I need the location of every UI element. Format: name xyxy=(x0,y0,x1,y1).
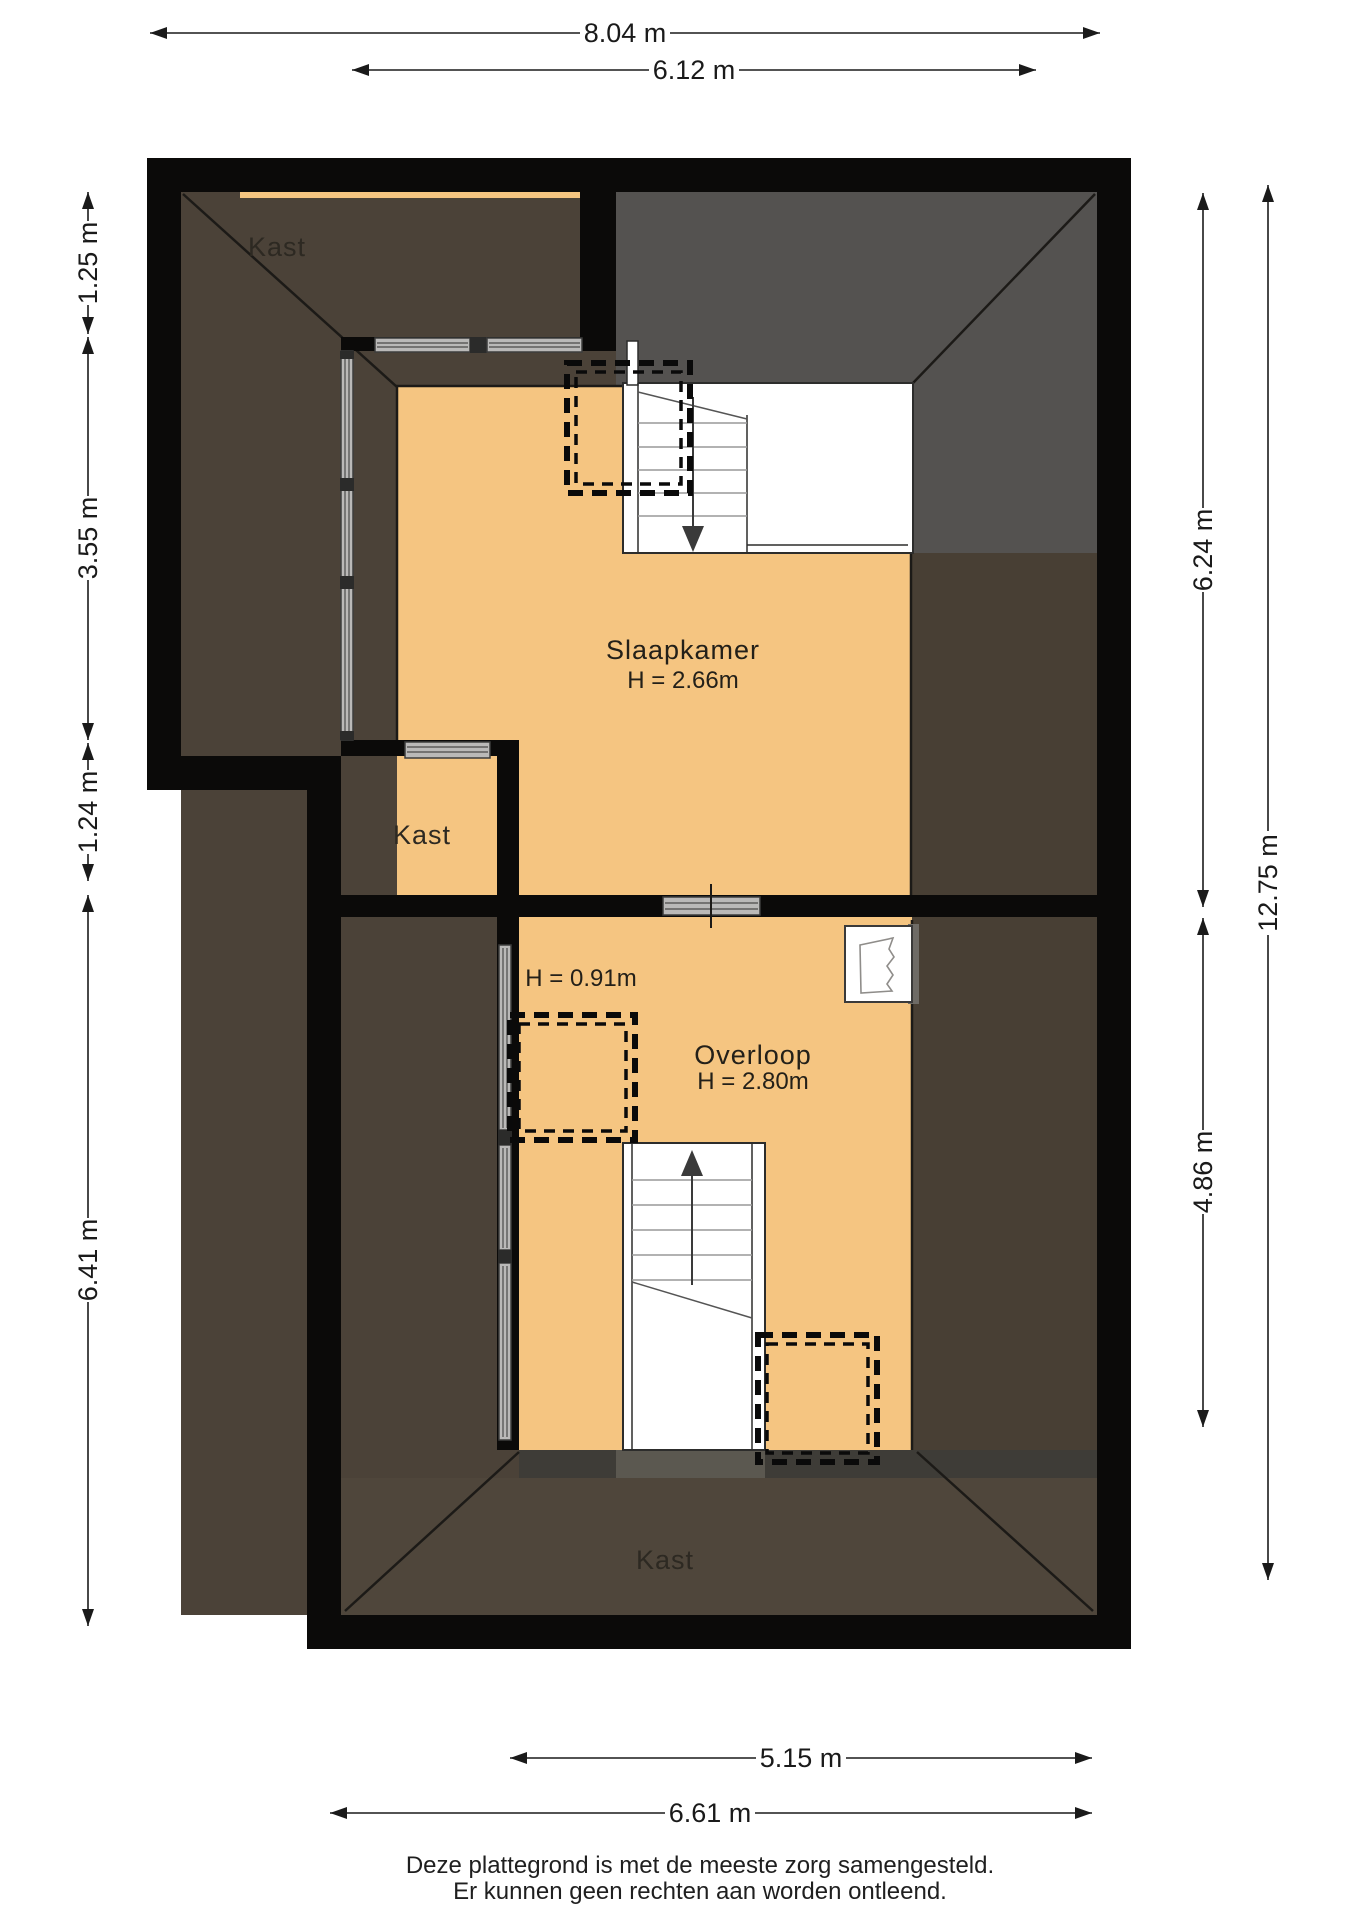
label-overloop-height: H = 2.80m xyxy=(697,1068,808,1095)
dimension-bottom-5-15: 5.15 m xyxy=(510,1741,1092,1775)
label-slaapkamer-height: H = 2.66m xyxy=(627,667,738,694)
shadow-band-under-stairs xyxy=(616,1450,765,1478)
wall-kast-gray-divider xyxy=(580,192,616,351)
floorplan-page: Kast Slaapkamer H = 2.66m Kast H = 0.91m… xyxy=(0,0,1358,1920)
dimension-bottom-6-61: 6.61 m xyxy=(330,1796,1092,1830)
dimension-left-1-24-value: 1.24 m xyxy=(73,771,103,854)
dimension-top-8-04: 8.04 m xyxy=(150,16,1100,50)
dimension-right-12-75: 12.75 m xyxy=(1250,185,1286,1580)
window-kast-middle xyxy=(405,742,490,758)
footer-disclaimer: Deze plattegrond is met de meeste zorg s… xyxy=(406,1852,994,1905)
window-north-2 xyxy=(487,338,582,352)
stairs-upper-area xyxy=(623,383,913,553)
footer-line2: Er kunnen geen rechten aan worden ontlee… xyxy=(453,1878,947,1905)
window-north-mullion xyxy=(470,337,487,353)
stairs-lower-area xyxy=(623,1143,765,1450)
dimension-left-1-25-value: 1.25 m xyxy=(73,222,103,305)
dimension-right-12-75-value: 12.75 m xyxy=(1253,834,1283,932)
dimension-top-8-04-value: 8.04 m xyxy=(584,18,667,48)
label-kast-top-left: Kast xyxy=(248,232,306,262)
floorplan-canvas: Kast Slaapkamer H = 2.66m Kast H = 0.91m… xyxy=(0,0,1358,1920)
label-kast-middle: Kast xyxy=(393,820,451,850)
dimension-left-1-24: 1.24 m xyxy=(70,743,106,881)
dormer-window xyxy=(845,924,919,1004)
dimension-right-4-86-value: 4.86 m xyxy=(1188,1131,1218,1214)
window-north-1 xyxy=(375,338,470,352)
dimension-top-6-12-value: 6.12 m xyxy=(653,55,736,85)
floor-strip-top xyxy=(240,192,612,198)
dimension-right-6-24-value: 6.24 m xyxy=(1188,509,1218,592)
dimension-left-3-55-value: 3.55 m xyxy=(73,497,103,580)
footer-line1: Deze plattegrond is met de meeste zorg s… xyxy=(406,1852,994,1879)
wall-kast-middle-right xyxy=(497,740,519,917)
dimension-left-1-25: 1.25 m xyxy=(70,192,106,334)
label-low-height: H = 0.91m xyxy=(525,965,636,992)
dimension-left-6-41: 6.41 m xyxy=(70,895,106,1626)
label-kast-bottom: Kast xyxy=(636,1545,694,1575)
room-kast-bottom-floor xyxy=(341,1478,1097,1615)
dimension-right-4-86: 4.86 m xyxy=(1185,918,1221,1427)
dimension-top-6-12: 6.12 m xyxy=(352,53,1036,87)
window-west-overloop xyxy=(498,945,512,1440)
zone-low-right xyxy=(911,553,1097,1450)
dimension-left-3-55: 3.55 m xyxy=(70,337,106,740)
dormer-window-pane xyxy=(845,926,912,1002)
dimension-right-6-24: 6.24 m xyxy=(1185,193,1221,907)
dimension-bottom-5-15-value: 5.15 m xyxy=(760,1743,843,1773)
stairs-lower xyxy=(623,1143,765,1450)
dimension-bottom-6-61-value: 6.61 m xyxy=(669,1798,752,1828)
dimension-left-6-41-value: 6.41 m xyxy=(73,1219,103,1302)
label-overloop: Overloop xyxy=(694,1040,812,1070)
label-slaapkamer: Slaapkamer xyxy=(606,635,760,665)
window-west-slaapkamer xyxy=(340,351,354,740)
